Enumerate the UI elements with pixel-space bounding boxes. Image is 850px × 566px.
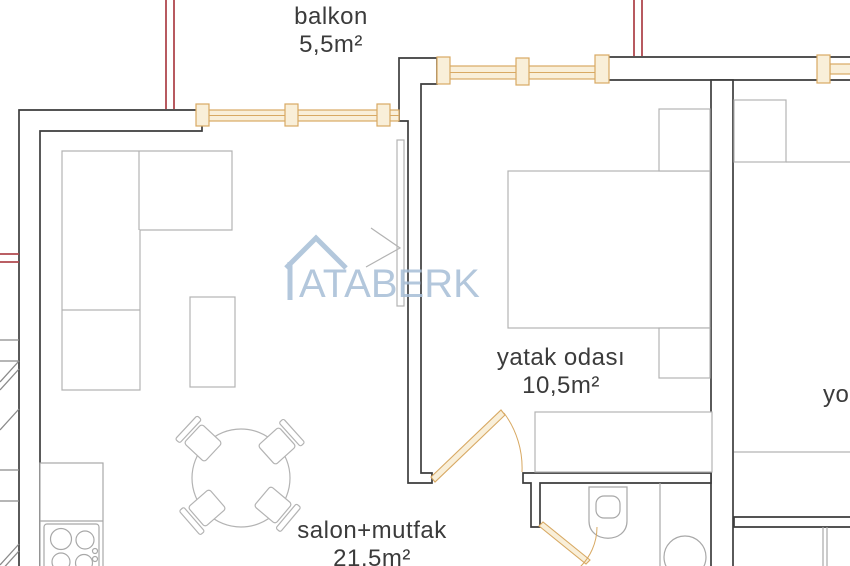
stairs bbox=[0, 340, 19, 566]
bedroom-door bbox=[431, 410, 522, 482]
room-label-yatak-odasi: yatak odası 10,5m² bbox=[497, 344, 625, 400]
nightstand-bottom bbox=[659, 328, 710, 378]
window-joint bbox=[595, 55, 609, 83]
room-label-salon-mutfak: salon+mutfak 21,5m² bbox=[297, 517, 446, 566]
bathroom-door bbox=[539, 522, 597, 566]
bed bbox=[508, 171, 710, 328]
walls bbox=[19, 57, 850, 566]
window-joint bbox=[285, 104, 298, 126]
washbasin bbox=[664, 536, 706, 566]
window-joint bbox=[516, 58, 529, 85]
window-joint bbox=[817, 55, 830, 83]
room-area: 10,5m² bbox=[497, 372, 625, 400]
edge-window-stub bbox=[830, 64, 850, 74]
room-area: 21,5m² bbox=[297, 545, 446, 566]
room-name: yatak odası bbox=[497, 344, 625, 372]
wall-top-right bbox=[605, 57, 850, 80]
wardrobe bbox=[535, 412, 712, 472]
coffee-table bbox=[190, 297, 235, 387]
room-label-adjacent-partial: yo bbox=[823, 381, 849, 409]
nightstand-top bbox=[659, 109, 710, 171]
adjacent-furniture bbox=[734, 100, 850, 566]
window-joint bbox=[437, 57, 450, 84]
room-name: balkon bbox=[294, 3, 368, 31]
room-name: salon+mutfak bbox=[297, 517, 446, 545]
window-joint bbox=[196, 104, 209, 126]
wall-bottom-right bbox=[734, 517, 850, 527]
room-label-balkon: balkon 5,5m² bbox=[294, 3, 368, 59]
stove bbox=[44, 524, 99, 566]
room-name: yo bbox=[823, 381, 849, 409]
floorplan: ATABERK balkon 5,5m² yatak odası 10,5m² … bbox=[0, 0, 850, 566]
window-joint bbox=[377, 104, 390, 126]
toilet bbox=[589, 487, 627, 538]
watermark-text: ATABERK bbox=[299, 262, 480, 306]
wall-right bbox=[711, 80, 733, 566]
floorplan-drawing: ATABERK bbox=[0, 0, 850, 566]
room-area: 5,5m² bbox=[294, 31, 368, 59]
watermark: ATABERK bbox=[286, 238, 480, 306]
